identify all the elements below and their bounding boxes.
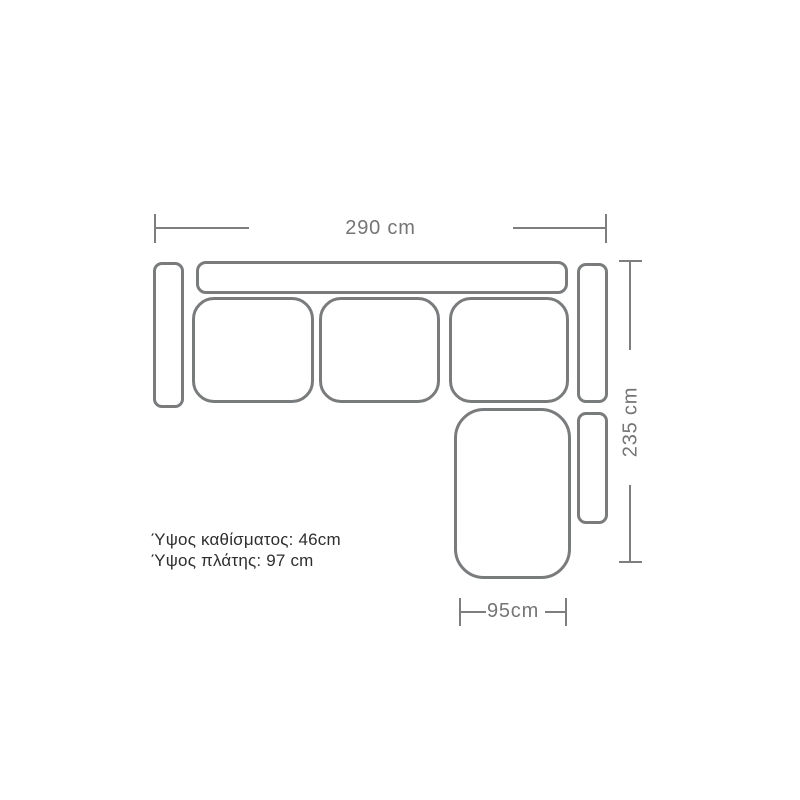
dimension-tick-bottom	[619, 561, 642, 563]
dimension-line-right	[545, 611, 565, 613]
dimension-width: 290 cm	[154, 214, 607, 244]
dimension-line-lower	[629, 485, 631, 561]
backrest-shape	[196, 261, 568, 294]
dimension-tick-right	[565, 598, 567, 626]
dimension-chaise-width: 95cm	[459, 598, 567, 627]
dimension-tick-right	[605, 214, 607, 243]
chaise-armrest-shape	[577, 412, 608, 524]
seat-cushion-3-shape	[449, 297, 569, 403]
diagram-canvas: 290 cm 235 cm 95cm Ύψος καθίσματος: 46cm…	[0, 0, 800, 800]
dimension-depth: 235 cm	[619, 260, 643, 563]
dimension-line-upper	[629, 262, 631, 350]
seat-cushion-1-shape	[192, 297, 314, 403]
back-height-note: Ύψος πλάτης: 97 cm	[151, 550, 341, 571]
height-notes: Ύψος καθίσματος: 46cm Ύψος πλάτης: 97 cm	[151, 529, 341, 571]
dimension-depth-label: 235 cm	[620, 387, 643, 457]
chaise-seat-shape	[454, 408, 571, 579]
dimension-line-right	[513, 227, 605, 229]
seat-height-note: Ύψος καθίσματος: 46cm	[151, 529, 341, 550]
left-armrest-shape	[153, 262, 184, 408]
right-backrest-shape	[577, 263, 608, 403]
seat-cushion-2-shape	[319, 297, 440, 403]
